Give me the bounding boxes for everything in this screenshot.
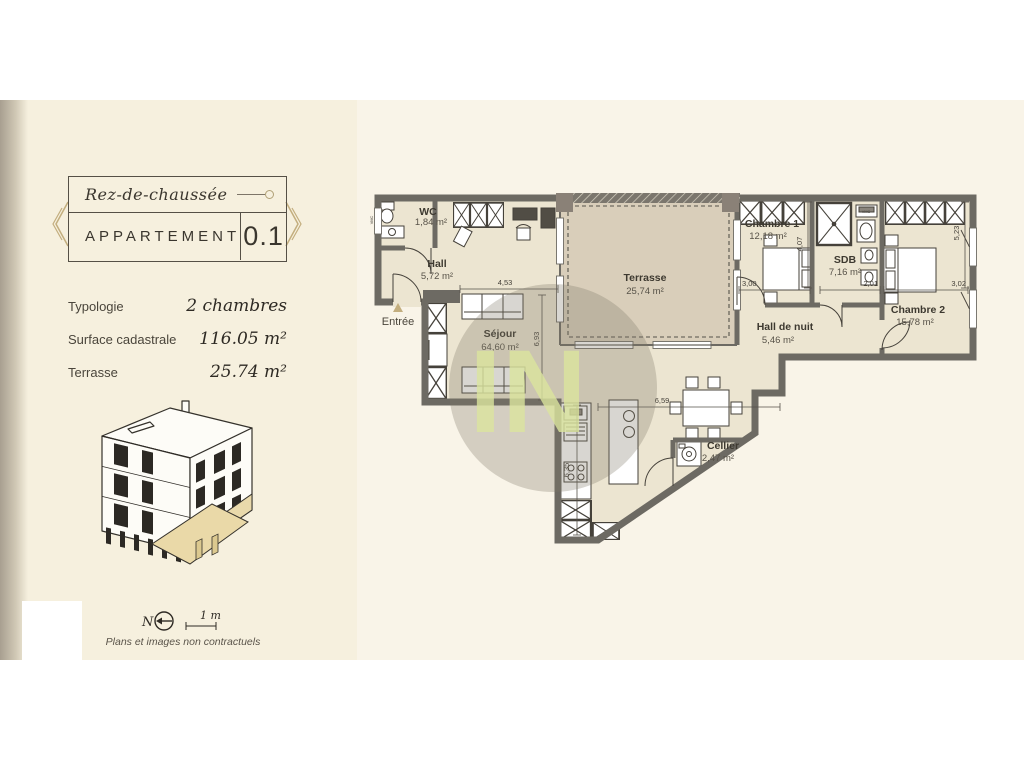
- vmc-label-wc: VMC: [370, 216, 374, 225]
- disclaimer: Plans et images non contractuels: [78, 636, 288, 648]
- detail-row-terrasse: Terrasse 25.74 m²: [68, 362, 287, 382]
- floor-plan: 4,53 6,93 3,00 4,07 2,01 3,02 5,23 6,59 …: [365, 190, 985, 550]
- terrace-pillar-left: [556, 193, 573, 212]
- dim-ch1-w: 3,00: [742, 279, 757, 288]
- north-label: N: [141, 615, 154, 630]
- dim-ch2-w: 3,02: [951, 279, 966, 288]
- detail-row-surface: Surface cadastrale 116.05 m²: [68, 329, 287, 349]
- scale-label: 1 m: [200, 609, 221, 622]
- room-label-hall-de-nuit: Hall de nuit: [757, 321, 814, 333]
- room-area-hall: 5,72 m²: [421, 271, 453, 282]
- room-label-hall: Hall: [427, 258, 446, 270]
- building-illustration: [92, 398, 267, 573]
- typologie-value: 2 chambres: [186, 296, 287, 316]
- scale-bar: 1 m: [186, 609, 221, 630]
- room-label-chambre2: Chambre 2: [891, 304, 945, 316]
- surface-label: Surface cadastrale: [68, 332, 176, 347]
- room-label-sdb: SDB: [834, 254, 857, 266]
- unit-details: Typologie 2 chambres Surface cadastrale …: [68, 296, 287, 395]
- dim-ch1-h: 4,07: [795, 237, 804, 252]
- dim-hall-w: 4,53: [498, 278, 513, 287]
- room-label-terrasse: Terrasse: [623, 272, 666, 284]
- entrance-label: Entrée: [382, 316, 414, 328]
- vmc-label: VMC: [862, 210, 871, 214]
- room-area-chambre1: 12,18 m²: [749, 231, 787, 242]
- typologie-label: Typologie: [68, 299, 124, 314]
- page-edge-shadow: [0, 100, 28, 660]
- unit-label: APPARTEMENT: [69, 213, 240, 260]
- north-arrow-icon: [155, 612, 173, 630]
- unit-card: Rez-de-chaussée APPARTEMENT 0.1: [68, 176, 287, 262]
- dim-ch2-h: 5,23: [952, 226, 961, 241]
- page-corner: [22, 601, 82, 660]
- dim-living-w: 6,59: [655, 396, 670, 405]
- room-area-terrasse: 25,74 m²: [626, 286, 664, 297]
- room-area-chambre2: 15,78 m²: [896, 317, 934, 328]
- watermark-text: IN: [469, 326, 587, 458]
- room-area-cellier: 2,47 m²: [702, 453, 734, 464]
- detail-row-typologie: Typologie 2 chambres: [68, 296, 287, 316]
- floor-title: Rez-de-chaussée: [85, 185, 227, 204]
- room-label-chambre1: Chambre 1: [745, 218, 799, 230]
- legend: N 1 m: [128, 608, 248, 636]
- unit-number: 0.1: [240, 213, 286, 260]
- dim-sdb-w: 2,01: [863, 279, 878, 288]
- deco-dot-icon: [265, 190, 274, 199]
- terrace-top-wall: [556, 193, 740, 203]
- deco-line: [237, 194, 265, 195]
- terrasse-label: Terrasse: [68, 365, 118, 380]
- surface-value: 116.05 m²: [199, 329, 287, 349]
- watermark: IN: [449, 284, 657, 492]
- room-label-cellier: Cellier: [707, 440, 739, 452]
- terrasse-value: 25.74 m²: [210, 362, 287, 382]
- room-area-sdb: 7,16 m²: [829, 267, 861, 278]
- room-area-wc: 1,84 m²: [415, 217, 447, 228]
- room-area-hall-de-nuit: 5,46 m²: [762, 335, 794, 346]
- terrace-pillar-right: [722, 193, 739, 212]
